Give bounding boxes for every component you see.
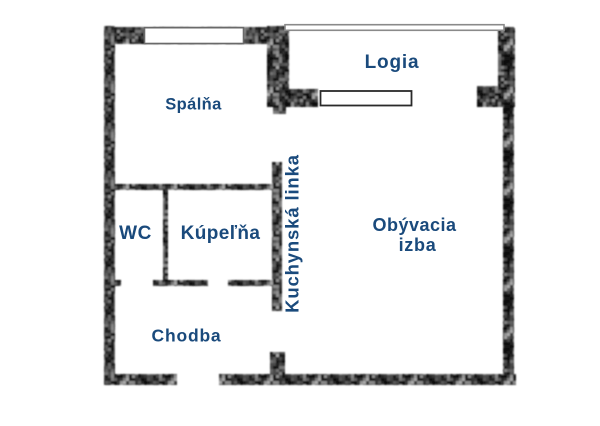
- svg-text:Kuchynská linka: Kuchynská linka: [282, 154, 303, 313]
- svg-text:Chodba: Chodba: [152, 326, 222, 346]
- svg-text:Kúpeľňa: Kúpeľňa: [181, 223, 261, 244]
- svg-text:Logia: Logia: [365, 52, 420, 73]
- svg-text:WC: WC: [119, 223, 152, 244]
- svg-text:izba: izba: [399, 235, 437, 255]
- svg-text:Obývacia: Obývacia: [372, 215, 457, 235]
- svg-text:Spálňa: Spálňa: [165, 96, 222, 114]
